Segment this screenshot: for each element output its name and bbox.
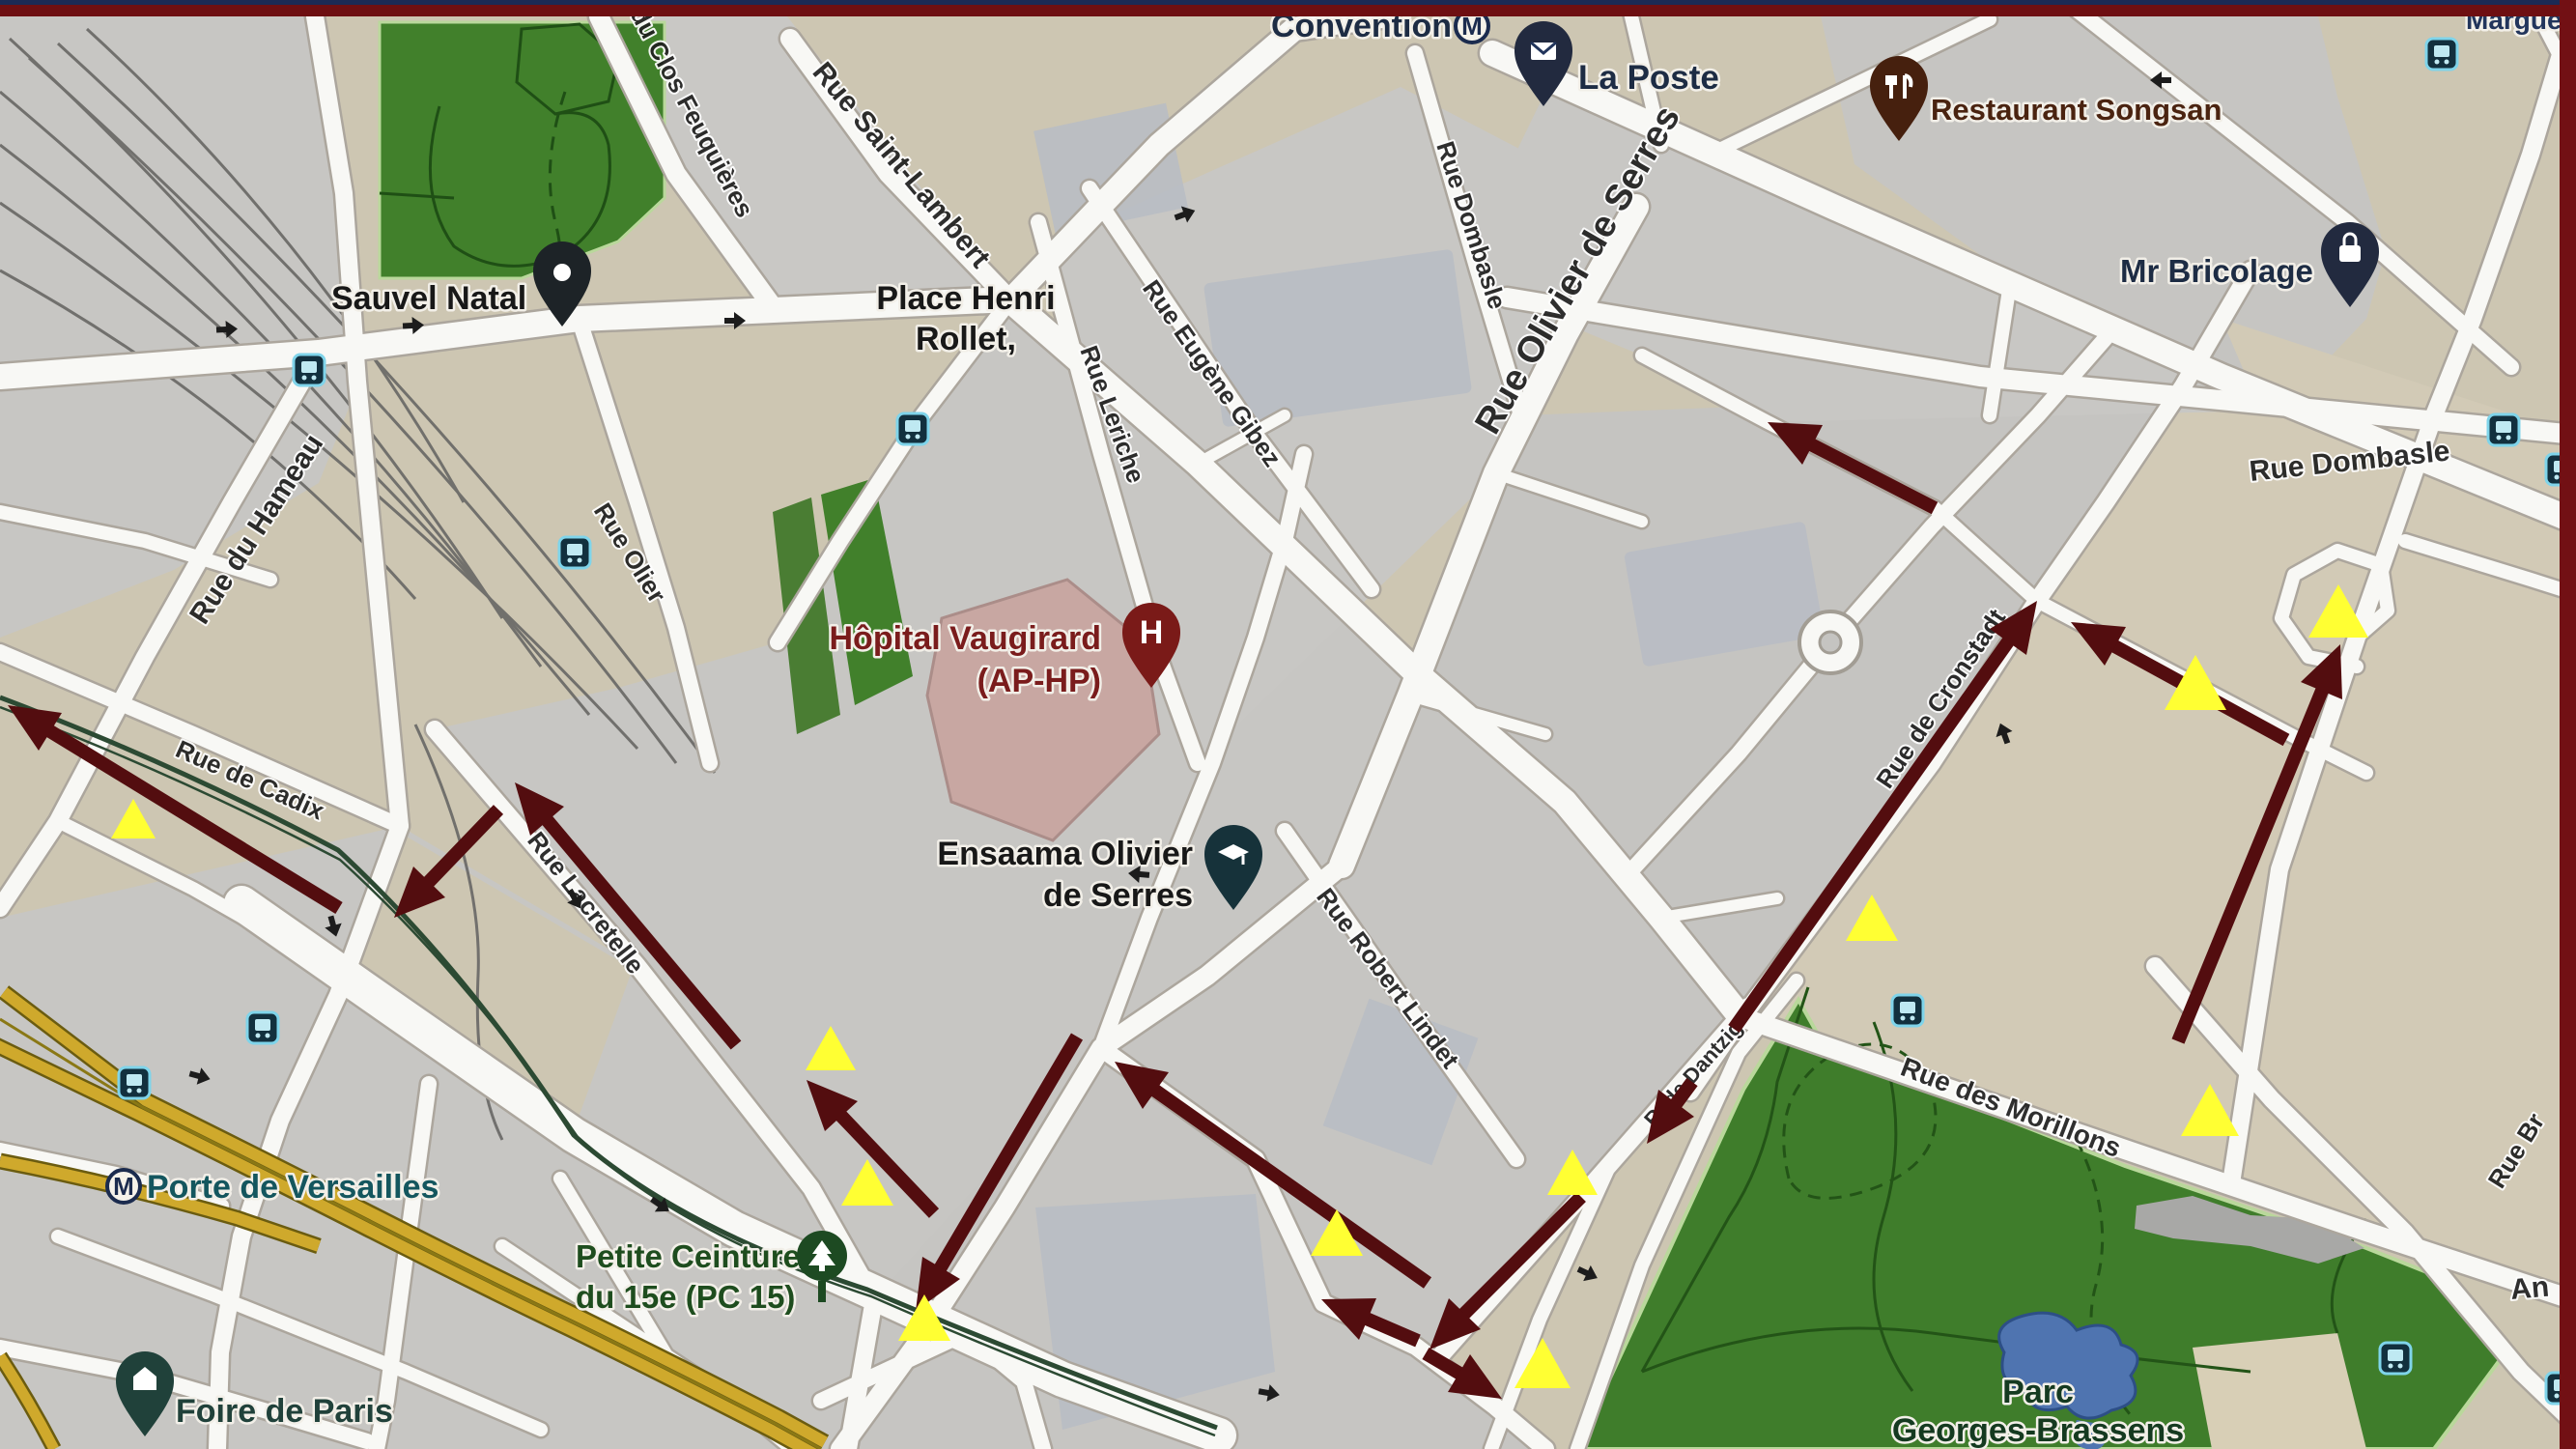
- svg-text:Georges-Brassens: Georges-Brassens: [1892, 1412, 2184, 1449]
- svg-text:Place Henri: Place Henri: [876, 280, 1055, 317]
- svg-text:Hôpital Vaugirard: Hôpital Vaugirard: [830, 620, 1102, 657]
- svg-text:Parc: Parc: [2002, 1374, 2074, 1410]
- svg-text:de Serres: de Serres: [1043, 877, 1193, 914]
- svg-text:Ensaama Olivier: Ensaama Olivier: [937, 836, 1193, 872]
- svg-text:H: H: [1140, 614, 1164, 651]
- svg-text:du 15e (PC 15): du 15e (PC 15): [576, 1279, 795, 1315]
- svg-text:(AP-HP): (AP-HP): [977, 663, 1101, 699]
- svg-text:Mr Bricolage: Mr Bricolage: [2120, 253, 2313, 289]
- svg-text:Rollet,: Rollet,: [916, 321, 1016, 357]
- svg-text:M: M: [113, 1172, 134, 1201]
- svg-text:Porte de Versailles: Porte de Versailles: [147, 1169, 439, 1206]
- svg-text:An: An: [2509, 1271, 2551, 1306]
- svg-text:Foire de Paris: Foire de Paris: [176, 1393, 393, 1430]
- svg-text:Sauvel Natal: Sauvel Natal: [331, 280, 526, 317]
- svg-text:La Poste: La Poste: [1578, 59, 1719, 97]
- svg-text:Restaurant Songsan: Restaurant Songsan: [1931, 93, 2222, 127]
- svg-text:Petite Ceinture: Petite Ceinture: [576, 1238, 801, 1274]
